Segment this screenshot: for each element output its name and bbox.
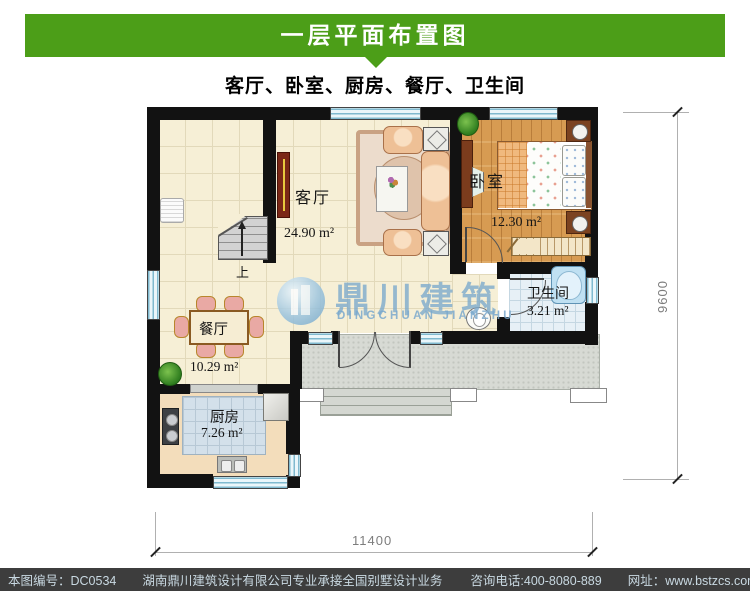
wall <box>410 331 420 344</box>
wall <box>290 331 302 389</box>
dim-extension-line <box>623 112 689 113</box>
bathroom-area: 3.21 m² <box>527 303 569 319</box>
toilet <box>466 307 491 330</box>
dim-width-value: 11400 <box>352 533 392 548</box>
bedroom-door-leaf <box>465 227 467 262</box>
window <box>213 476 288 489</box>
pillow <box>562 145 586 176</box>
column-base <box>450 388 477 402</box>
dining-room-label: 餐厅 <box>199 318 228 339</box>
coffee-table <box>376 166 408 212</box>
drawing-serial: 本图编号：DC0534 <box>8 570 116 589</box>
dining-room-area: 10.29 m² <box>190 359 238 375</box>
dim-extension-line <box>623 479 689 480</box>
company-slogan: 湖南鼎川建筑设计有限公司专业承接全国别墅设计业务 <box>142 570 442 589</box>
window <box>288 454 301 477</box>
stairs-arrow-head <box>238 221 246 229</box>
window <box>586 277 599 304</box>
entry-door-leaf <box>409 331 411 367</box>
footer-bar: 本图编号：DC0534 湖南鼎川建筑设计有限公司专业承接全国别墅设计业务 咨询电… <box>0 568 750 591</box>
bed-sheet <box>527 142 561 208</box>
column-base <box>298 388 324 402</box>
sofa-three-seat <box>421 151 450 231</box>
wall <box>147 318 160 476</box>
side-table <box>423 231 449 256</box>
wall <box>147 474 213 488</box>
wall <box>497 272 510 279</box>
sofa-loveseat <box>383 126 423 154</box>
tv-cabinet <box>277 152 290 218</box>
window <box>420 332 443 345</box>
column-base <box>570 388 607 403</box>
window <box>147 270 160 320</box>
bed-headboard <box>586 142 591 208</box>
page-title: 一层平面布置图 <box>25 14 725 57</box>
kitchen-sink <box>217 456 247 473</box>
title-pointer-triangle <box>365 57 387 68</box>
pillow <box>562 177 586 207</box>
wall <box>160 384 190 394</box>
wardrobe <box>511 237 591 256</box>
room-list-subtitle: 客厅、卧室、厨房、餐厅、卫生间 <box>0 71 750 98</box>
dining-chair <box>249 316 264 338</box>
hall-cabinet <box>160 198 184 223</box>
stairs-up-label: 上 <box>236 262 249 281</box>
floor-plan-page: 一层平面布置图 客厅、卧室、厨房、餐厅、卫生间 <box>0 0 750 591</box>
bedroom-area: 12.30 m² <box>491 215 541 231</box>
stairs-arrow-line <box>241 228 243 256</box>
dim-line-right <box>677 112 678 480</box>
dim-height-value: 9600 <box>655 280 670 313</box>
wall <box>441 331 586 344</box>
window <box>308 332 333 345</box>
sofa-armchair <box>383 229 422 256</box>
consult-phone: 咨询电话:400-8080-889 <box>470 570 601 589</box>
kitchen-area: 7.26 m² <box>201 425 243 441</box>
entry-steps <box>320 388 452 416</box>
wall <box>147 118 160 270</box>
double-bed <box>497 141 592 210</box>
kitchen-label: 厨房 <box>210 406 239 427</box>
dining-chair <box>174 316 189 338</box>
bathroom-door-leaf <box>510 278 544 280</box>
side-table <box>423 127 449 151</box>
living-room-area: 24.90 m² <box>284 226 334 242</box>
dim-line-bottom <box>155 552 593 553</box>
nightstand <box>566 211 591 234</box>
nightstand <box>566 120 591 142</box>
window <box>330 107 421 120</box>
window <box>489 107 558 120</box>
wall <box>450 262 466 274</box>
kitchen-counter <box>190 384 258 393</box>
entry-door-leaf <box>338 331 340 367</box>
living-room-label: 客厅 <box>295 184 331 208</box>
bedroom-label: 卧室 <box>469 168 505 192</box>
fridge <box>263 393 289 421</box>
wall <box>585 302 598 345</box>
potted-plant <box>457 112 479 136</box>
bathroom-label: 卫生间 <box>527 283 569 303</box>
website-url: 网址：www.bstzcs.com <box>628 570 750 589</box>
potted-plant <box>158 362 182 386</box>
wall <box>147 107 330 120</box>
stove <box>162 408 179 445</box>
